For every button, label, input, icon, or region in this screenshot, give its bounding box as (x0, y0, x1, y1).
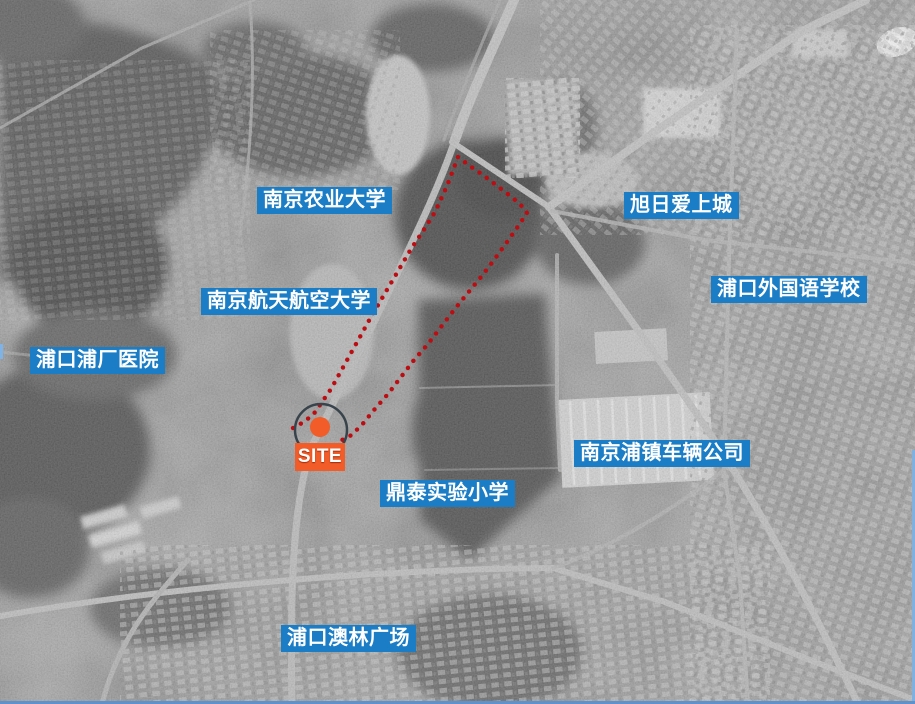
map-label-nanjing-hangtian-hangkong-university: 南京航天航空大学 (201, 288, 377, 315)
site-marker-label: SITE (295, 443, 345, 471)
map-label-pukou-aolin-plaza: 浦口澳林广场 (281, 625, 416, 652)
map-label-pukou-foreign-language-school: 浦口外国语学校 (711, 276, 867, 303)
callout-fragment-left (0, 344, 3, 359)
site-location-map: 南京农业大学 旭日爱上城 浦口外国语学校 南京航天航空大学 浦口浦厂医院 南京浦… (0, 0, 915, 704)
map-label-nanjing-agricultural-university: 南京农业大学 (257, 187, 392, 214)
map-label-dingtai-experimental-primary-school: 鼎泰实验小学 (380, 480, 515, 507)
map-label-pukou-puchang-hospital: 浦口浦厂医院 (30, 347, 165, 374)
map-label-nanjing-puzhen-vehicle-company: 南京浦镇车辆公司 (574, 440, 750, 467)
map-label-xuri-aishangcheng: 旭日爱上城 (624, 192, 739, 219)
